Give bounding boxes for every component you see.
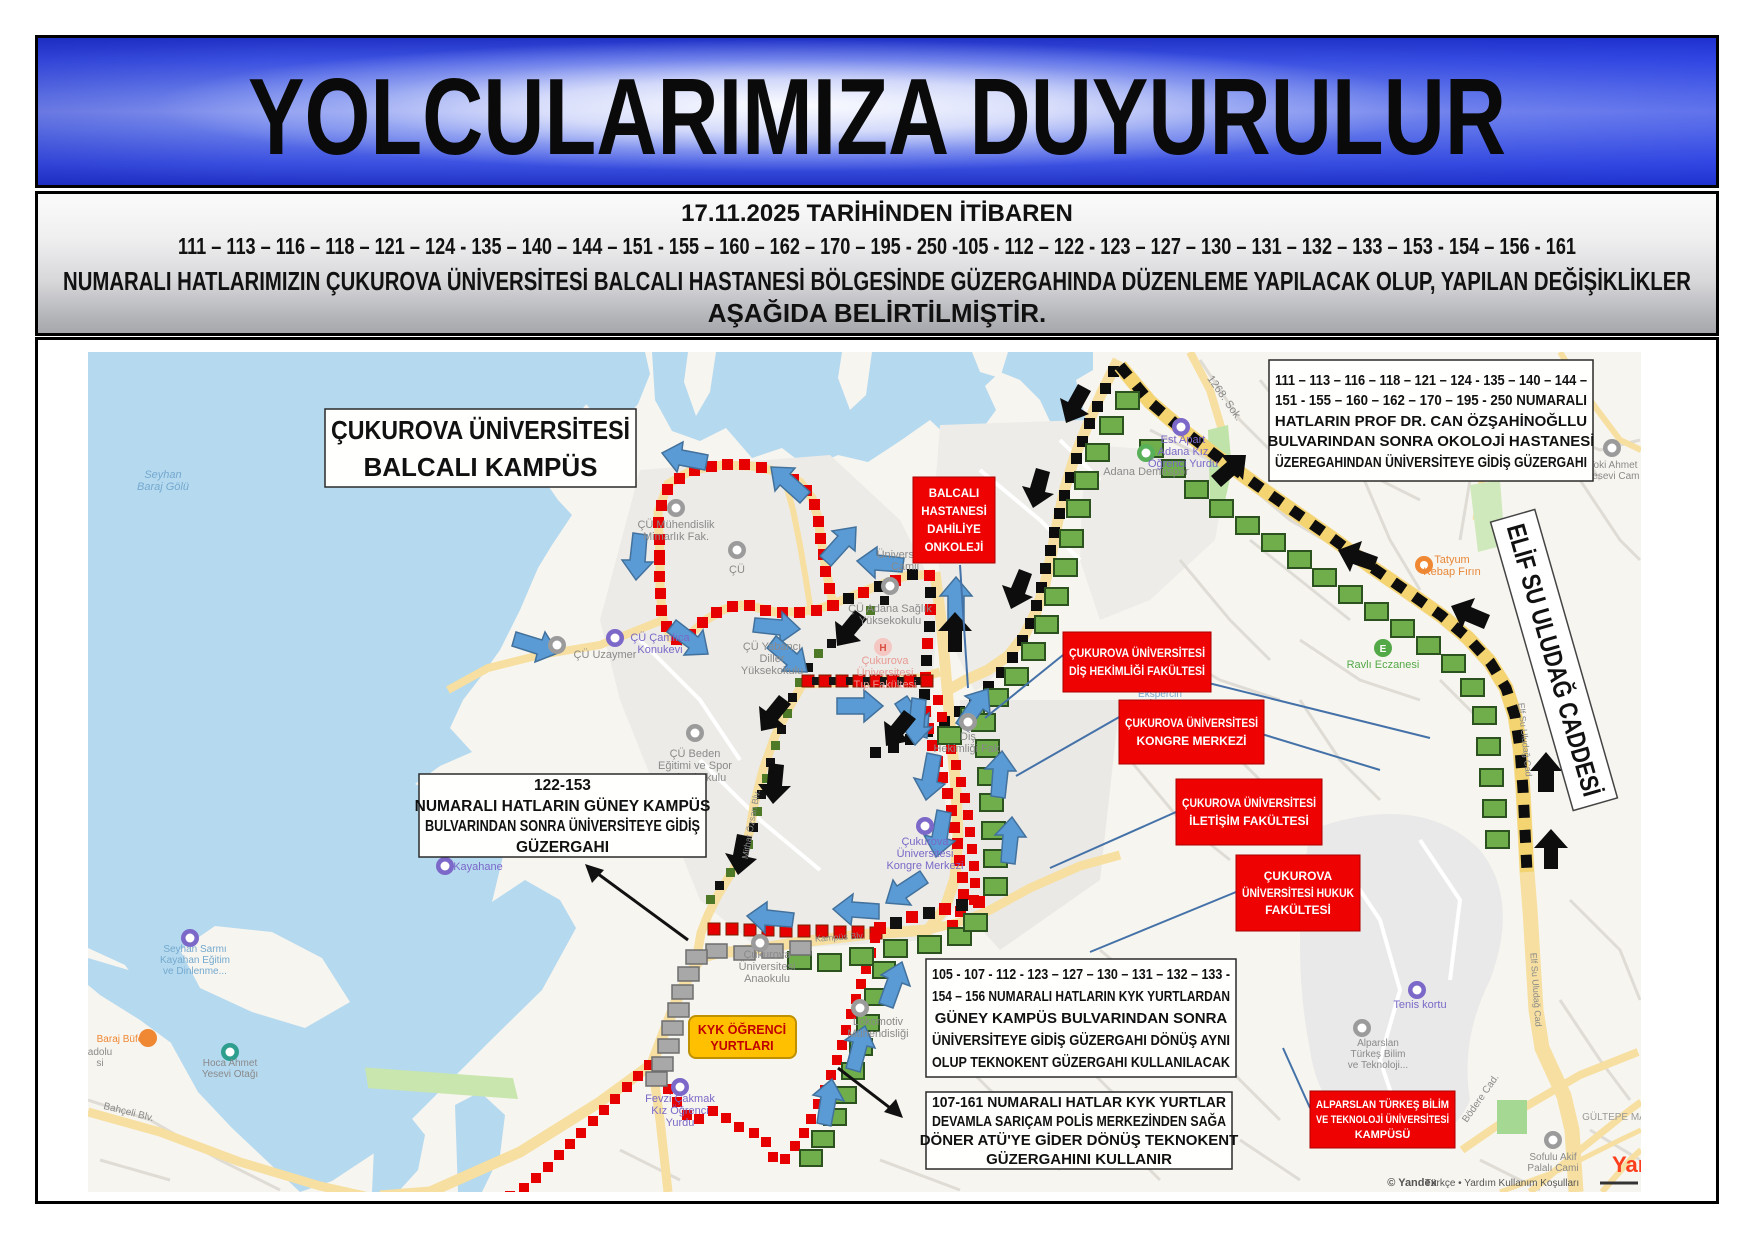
- svg-text:OLUP TEKNOKENT GÜZERGAHI KULLA: OLUP TEKNOKENT GÜZERGAHI KULLANILACAK: [932, 1054, 1230, 1071]
- svg-text:Ravlı Eczanesi: Ravlı Eczanesi: [1347, 659, 1420, 671]
- svg-text:BALCALI KAMPÜS: BALCALI KAMPÜS: [364, 452, 598, 482]
- svg-text:ÇÜ ÇamlıcaKonukevi: ÇÜ ÇamlıcaKonukevi: [630, 632, 690, 656]
- svg-text:FAKÜLTESİ: FAKÜLTESİ: [1265, 902, 1331, 917]
- svg-text:122-153: 122-153: [534, 777, 591, 794]
- svg-text:NUMARALI HATLARIMIZIN ÇUKUROV: NUMARALI HATLARIMIZIN ÇUKUROVA ÜNİVERSİT…: [63, 266, 1691, 296]
- svg-text:GÜLTEPE MA: GÜLTEPE MA: [1582, 1111, 1646, 1123]
- svg-text:BULVARINDAN SONRA ÜNİVERSİTEYE: BULVARINDAN SONRA ÜNİVERSİTEYE GİDİŞ: [425, 818, 700, 835]
- svg-text:ÇÜ: ÇÜ: [729, 564, 745, 576]
- svg-text:ÜNİVERSİTESİ HUKUK: ÜNİVERSİTESİ HUKUK: [1242, 885, 1354, 900]
- svg-text:DÖNER ATÜ'YE GİDER DÖNÜŞ TEKNO: DÖNER ATÜ'YE GİDER DÖNÜŞ TEKNOKENT: [920, 1132, 1239, 1149]
- svg-text:SeyhanBaraj Gölü: SeyhanBaraj Gölü: [137, 469, 189, 493]
- svg-text:ÇUKUROVA: ÇUKUROVA: [1264, 869, 1333, 883]
- svg-text:AŞAĞIDA BELİRTİLMİŞTİR.: AŞAĞIDA BELİRTİLMİŞTİR.: [708, 298, 1046, 328]
- svg-text:Seyhan SarmıKayahan Eğitimve D: Seyhan SarmıKayahan Eğitimve Dinlenme...: [160, 944, 230, 977]
- svg-text:Kayahane: Kayahane: [453, 861, 503, 873]
- svg-text:DİŞ HEKİMLİĞİ FAKÜLTESİ: DİŞ HEKİMLİĞİ FAKÜLTESİ: [1069, 663, 1205, 678]
- svg-text:Yan: Yan: [1612, 1152, 1651, 1177]
- svg-text:HASTANESİ: HASTANESİ: [921, 505, 987, 518]
- svg-text:ÇUKUROVA ÜNİVERSİTESİ: ÇUKUROVA ÜNİVERSİTESİ: [331, 415, 630, 445]
- svg-text:GÜNEY KAMPÜS BULVARINDAN SONRA: GÜNEY KAMPÜS BULVARINDAN SONRA: [935, 1010, 1228, 1027]
- svg-text:105 - 107 - 112 - 123 – 127 –: 105 - 107 - 112 - 123 – 127 – 130 – 131 …: [932, 966, 1230, 983]
- svg-text:Tenis kortu: Tenis kortu: [1393, 999, 1446, 1011]
- svg-text:Sofulu AkifPalalı Cami: Sofulu AkifPalalı Cami: [1527, 1152, 1578, 1174]
- svg-text:YURTLARI: YURTLARI: [710, 1039, 773, 1053]
- svg-text:107-161 NUMARALI HATLAR KYK YU: 107-161 NUMARALI HATLAR KYK YURTLAR: [932, 1094, 1226, 1111]
- svg-text:ÇÜ Adana SağlıkYüksekokulu: ÇÜ Adana SağlıkYüksekokulu: [848, 603, 932, 627]
- svg-text:Hoca AhmetYesevi Otağı: Hoca AhmetYesevi Otağı: [202, 1058, 258, 1080]
- svg-text:ÜZEREGAHINDAN ÜNİVERSİTEYE GİD: ÜZEREGAHINDAN ÜNİVERSİTEYE GİDİŞ GÜZERGA…: [1275, 454, 1587, 471]
- svg-text:GÜZERGAHINI KULLANIR: GÜZERGAHINI KULLANIR: [986, 1151, 1172, 1168]
- svg-text:ALPARSLAN TÜRKEŞ BİLİM: ALPARSLAN TÜRKEŞ BİLİM: [1316, 1098, 1449, 1111]
- svg-text:ÇUKUROVA ÜNİVERSİTESİ: ÇUKUROVA ÜNİVERSİTESİ: [1182, 795, 1316, 810]
- svg-text:KYK ÖĞRENCİ: KYK ÖĞRENCİ: [698, 1022, 786, 1037]
- svg-text:NUMARALI HATLARIN GÜNEY KAMPÜS: NUMARALI HATLARIN GÜNEY KAMPÜS: [415, 798, 711, 815]
- svg-text:30: 30: [1645, 1179, 1657, 1190]
- svg-text:ÇukurovaÜniversitesiAnaokulu: ÇukurovaÜniversitesiAnaokulu: [739, 949, 796, 985]
- svg-text:H: H: [879, 643, 886, 654]
- svg-text:E: E: [1380, 644, 1387, 655]
- svg-text:Toki AhmetYesevi Cam: Toki AhmetYesevi Cam: [1587, 460, 1640, 482]
- svg-text:DEVAMLA SARIÇAM POLİS MERKEZİN: DEVAMLA SARIÇAM POLİS MERKEZİNDEN SAĞA: [932, 1112, 1226, 1130]
- svg-text:VE TEKNOLOJİ ÜNİVERSİTESİ: VE TEKNOLOJİ ÜNİVERSİTESİ: [1316, 1113, 1449, 1126]
- svg-text:BALCALI: BALCALI: [929, 488, 979, 500]
- svg-text:ÇukurovaÜniversitesiTıp Fakült: ÇukurovaÜniversitesiTıp Fakültesi: [854, 655, 917, 691]
- svg-text:111 – 113 – 116 – 118 – 121 –: 111 – 113 – 116 – 118 – 121 – 124 - 135 …: [1275, 372, 1587, 389]
- svg-text:HATLARIN PROF DR. CAN ÖZŞAHİNO: HATLARIN PROF DR. CAN ÖZŞAHİNOĞLLU: [1275, 412, 1587, 430]
- svg-text:111 – 113 – 116 – 118 – 121 –: 111 – 113 – 116 – 118 – 121 – 124 - 135 …: [178, 233, 1576, 259]
- svg-text:YOLCULARIMIZA DUYURULUR: YOLCULARIMIZA DUYURULUR: [248, 56, 1506, 178]
- svg-text:KONGRE MERKEZİ: KONGRE MERKEZİ: [1136, 733, 1246, 748]
- svg-text:ÇÜ MühendislikMimarlık Fak.: ÇÜ MühendislikMimarlık Fak.: [637, 519, 715, 543]
- svg-text:ÇÜ Uzaymer: ÇÜ Uzaymer: [574, 649, 637, 661]
- svg-text:Baraj Büfe: Baraj Büfe: [97, 1034, 144, 1045]
- svg-text:Türkçe • Yardım Kullanım K: Türkçe • Yardım Kullanım Koşulları: [1425, 1178, 1579, 1189]
- svg-text:İLETİŞİM FAKÜLTESİ: İLETİŞİM FAKÜLTESİ: [1189, 813, 1309, 828]
- svg-text:DAHİLİYE: DAHİLİYE: [927, 523, 981, 536]
- svg-text:ONKOLEJİ: ONKOLEJİ: [925, 541, 984, 554]
- svg-text:ÇUKUROVA ÜNİVERSİTESİ: ÇUKUROVA ÜNİVERSİTESİ: [1069, 645, 1205, 660]
- svg-text:17.11.2025 TARİHİNDEN İTİBAREN: 17.11.2025 TARİHİNDEN İTİBAREN: [681, 200, 1073, 227]
- svg-text:ÜNİVERSİTEYE GİDİŞ GÜZERGAHI D: ÜNİVERSİTEYE GİDİŞ GÜZERGAHI DÖNÜŞ AYNI: [932, 1032, 1230, 1049]
- svg-text:LokomotivMühendisliği: LokomotivMühendisliği: [847, 1016, 908, 1040]
- svg-text:KAMPÜSÜ: KAMPÜSÜ: [1355, 1128, 1411, 1141]
- svg-text:154 – 156 NUMARALI HATLARIN K: 154 – 156 NUMARALI HATLARIN KYK YURTLARD…: [932, 988, 1230, 1005]
- svg-text:BULVARINDAN SONRA OKOLOJİ HAST: BULVARINDAN SONRA OKOLOJİ HASTANESİ: [1268, 433, 1595, 450]
- svg-text:GÜZERGAHI: GÜZERGAHI: [516, 839, 609, 856]
- svg-text:ÇUKUROVA ÜNİVERSİTESİ: ÇUKUROVA ÜNİVERSİTESİ: [1125, 715, 1258, 730]
- svg-text:151 - 155 – 160 – 162 – 170 –: 151 - 155 – 160 – 162 – 170 – 195 - 250 …: [1275, 392, 1587, 409]
